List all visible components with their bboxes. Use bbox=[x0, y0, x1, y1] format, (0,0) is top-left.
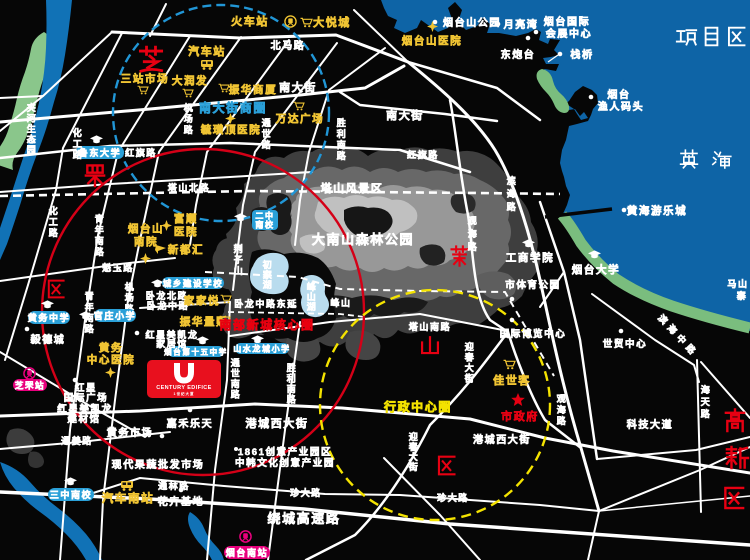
svg-text:行政中心圈: 行政中心圈 bbox=[383, 399, 452, 414]
svg-text:卧龙北路: 卧龙北路 bbox=[146, 290, 188, 301]
svg-text:通林路: 通林路 bbox=[158, 480, 190, 491]
svg-text:会展中心: 会展中心 bbox=[546, 27, 592, 40]
svg-text:化工路: 化工路 bbox=[73, 127, 84, 160]
svg-text:月亮湾: 月亮湾 bbox=[503, 18, 539, 31]
svg-text:市政府: 市政府 bbox=[501, 409, 539, 423]
svg-text:汽车南站: 汽车南站 bbox=[102, 491, 154, 505]
svg-text:塔山北路: 塔山北路 bbox=[168, 182, 210, 193]
svg-text:官庄小学: 官庄小学 bbox=[94, 310, 136, 321]
svg-text:国际广场: 国际广场 bbox=[64, 392, 108, 404]
svg-text:万达广场: 万达广场 bbox=[275, 112, 324, 125]
svg-text:观海路: 观海路 bbox=[468, 216, 479, 252]
svg-text:烟台大学: 烟台大学 bbox=[572, 263, 620, 276]
svg-text:港城西大街: 港城西大街 bbox=[246, 416, 309, 430]
svg-text:富顺: 富顺 bbox=[174, 212, 198, 225]
svg-text:毓璜顶医院: 毓璜顶医院 bbox=[201, 123, 262, 136]
svg-text:黄务市场: 黄务市场 bbox=[107, 426, 153, 439]
svg-text:南大街: 南大街 bbox=[279, 80, 317, 94]
svg-text:北马路: 北马路 bbox=[271, 39, 306, 52]
svg-text:卧龙中路: 卧龙中路 bbox=[147, 300, 189, 311]
svg-text:南校: 南校 bbox=[255, 220, 274, 230]
svg-text:汽车站: 汽车站 bbox=[188, 44, 226, 58]
svg-text:烟台南站: 烟台南站 bbox=[226, 547, 268, 558]
svg-text:毅德城: 毅德城 bbox=[30, 333, 66, 346]
svg-text:珍大路: 珍大路 bbox=[290, 487, 322, 498]
svg-text:大南山森林公园: 大南山森林公园 bbox=[312, 232, 414, 247]
svg-text:鲁东大学: 鲁东大学 bbox=[79, 147, 121, 158]
svg-text:南大街商圈: 南大街商圈 bbox=[199, 100, 267, 115]
svg-text:烟台: 烟台 bbox=[607, 88, 630, 101]
svg-text:新都汇: 新都汇 bbox=[168, 243, 204, 256]
svg-text:东炮台: 东炮台 bbox=[501, 48, 536, 61]
svg-text:烟台山公园: 烟台山公园 bbox=[443, 16, 501, 29]
svg-text:CENTURY EDIFICE: CENTURY EDIFICE bbox=[156, 385, 212, 391]
svg-text:滨海路: 滨海路 bbox=[507, 175, 518, 212]
svg-text:1世纪大厦: 1世纪大厦 bbox=[174, 391, 195, 396]
svg-text:家家悦: 家家悦 bbox=[184, 294, 220, 307]
svg-text:火车站: 火车站 bbox=[231, 14, 269, 28]
svg-text:栈桥: 栈桥 bbox=[570, 48, 593, 61]
svg-text:振华商厦: 振华商厦 bbox=[229, 83, 277, 96]
svg-text:世贸中心: 世贸中心 bbox=[603, 338, 647, 350]
svg-text:佳世客: 佳世客 bbox=[493, 373, 531, 387]
svg-text:峰山湖: 峰山湖 bbox=[307, 281, 318, 312]
svg-text:烟台山: 烟台山 bbox=[128, 222, 164, 235]
svg-text:现代果蔬批发市场: 现代果蔬批发市场 bbox=[112, 458, 205, 471]
svg-text:机场路: 机场路 bbox=[184, 102, 195, 135]
svg-text:市体育公园: 市体育公园 bbox=[505, 279, 561, 291]
svg-text:黄务: 黄务 bbox=[99, 341, 123, 354]
svg-text:工商学院: 工商学院 bbox=[506, 251, 554, 264]
svg-text:胜利南路: 胜利南路 bbox=[286, 362, 298, 405]
svg-text:烟台国际: 烟台国际 bbox=[544, 15, 590, 28]
svg-text:城乡建设学校: 城乡建设学校 bbox=[163, 279, 224, 289]
svg-text:绕城高速路: 绕城高速路 bbox=[267, 511, 340, 526]
svg-text:南部新城核心圈: 南部新城核心圈 bbox=[219, 317, 314, 332]
svg-text:南大街: 南大街 bbox=[386, 108, 424, 122]
svg-text:海天路: 海天路 bbox=[701, 384, 712, 419]
svg-text:科技大道: 科技大道 bbox=[627, 418, 673, 431]
svg-text:烟台山医院: 烟台山医院 bbox=[402, 34, 463, 47]
svg-text:塔山南路: 塔山南路 bbox=[409, 321, 451, 332]
svg-text:大悦城: 大悦城 bbox=[313, 15, 351, 29]
svg-text:峰山: 峰山 bbox=[330, 297, 351, 308]
svg-text:芝罘站: 芝罘站 bbox=[15, 381, 45, 391]
svg-text:珍大路: 珍大路 bbox=[437, 492, 469, 503]
svg-text:山水龙城小学: 山水龙城小学 bbox=[233, 344, 291, 354]
svg-text:观海路: 观海路 bbox=[557, 394, 568, 426]
svg-text:南院: 南院 bbox=[134, 235, 158, 248]
svg-text:港城西大街: 港城西大街 bbox=[473, 433, 531, 446]
svg-text:三中南校: 三中南校 bbox=[50, 489, 92, 500]
svg-text:三站市场: 三站市场 bbox=[121, 72, 169, 85]
svg-text:通姜路: 通姜路 bbox=[61, 435, 93, 446]
svg-text:夹河生态园: 夹河生态园 bbox=[27, 102, 38, 155]
svg-text:化工路: 化工路 bbox=[49, 205, 60, 238]
svg-text:黄务中学: 黄务中学 bbox=[28, 312, 70, 323]
svg-text:荆子山: 荆子山 bbox=[234, 243, 245, 276]
svg-text:迎春大街: 迎春大街 bbox=[464, 341, 476, 384]
svg-text:二中: 二中 bbox=[255, 211, 274, 221]
svg-text:1861创意产业园区: 1861创意产业园区 bbox=[238, 446, 332, 458]
svg-text:寨: 寨 bbox=[736, 290, 748, 301]
svg-text:中韩文化创意产业园: 中韩文化创意产业园 bbox=[235, 457, 335, 469]
svg-text:建材馆: 建材馆 bbox=[66, 413, 100, 425]
svg-text:魁玉路: 魁玉路 bbox=[102, 262, 134, 273]
svg-text:马山: 马山 bbox=[727, 278, 748, 289]
svg-text:塔山风景区: 塔山风景区 bbox=[321, 181, 384, 195]
svg-text:卧龙中路东延: 卧龙中路东延 bbox=[234, 298, 298, 309]
svg-text:通世南路: 通世南路 bbox=[231, 357, 242, 400]
svg-text:家居馆: 家居馆 bbox=[156, 338, 188, 349]
svg-text:红旗路: 红旗路 bbox=[407, 149, 439, 160]
svg-text:红旗路: 红旗路 bbox=[125, 147, 157, 158]
svg-text:渔人码头: 渔人码头 bbox=[598, 100, 644, 113]
svg-text:中心医院: 中心医院 bbox=[87, 353, 135, 366]
svg-text:通世路: 通世路 bbox=[262, 117, 273, 150]
svg-text:花卉基地: 花卉基地 bbox=[158, 495, 204, 508]
svg-text:初家湖: 初家湖 bbox=[263, 259, 274, 290]
svg-text:嘉禾乐天: 嘉禾乐天 bbox=[166, 417, 213, 430]
svg-text:大润发: 大润发 bbox=[172, 74, 208, 87]
svg-text:国际博览中心: 国际博览中心 bbox=[500, 328, 567, 340]
svg-text:迎春大街: 迎春大街 bbox=[408, 431, 420, 472]
svg-text:医院: 医院 bbox=[174, 225, 198, 238]
svg-text:黄海游乐城: 黄海游乐城 bbox=[627, 204, 688, 217]
